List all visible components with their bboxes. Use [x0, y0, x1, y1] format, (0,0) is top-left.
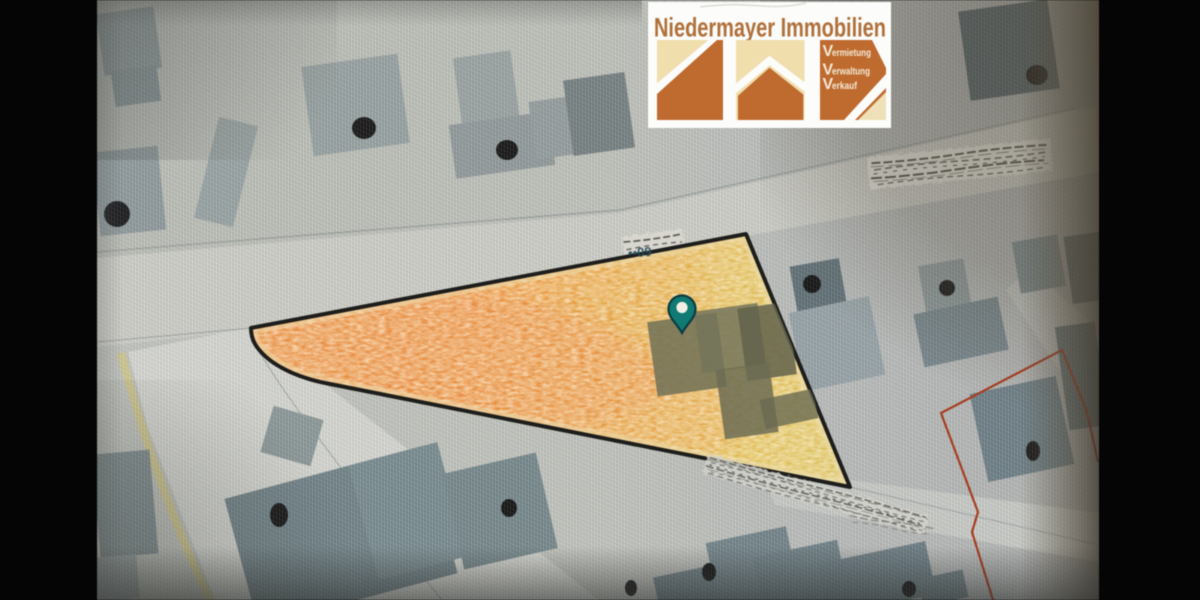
svg-text:Niedermayer Immobilien: Niedermayer Immobilien — [654, 13, 886, 43]
svg-text:••09: ••09 — [628, 244, 653, 261]
svg-text:erkauf: erkauf — [832, 80, 857, 92]
svg-text:ermietung: ermietung — [832, 47, 871, 59]
svg-text:erwaltung: erwaltung — [832, 66, 870, 78]
